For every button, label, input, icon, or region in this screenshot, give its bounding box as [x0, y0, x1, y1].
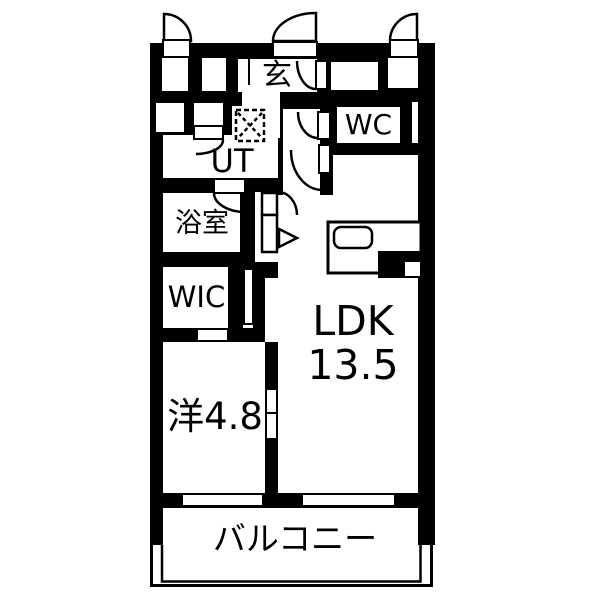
door-leaf-wic [197, 329, 228, 341]
door-leaf-hall-ldk [319, 145, 330, 173]
door-arc-hall-ldk [291, 150, 322, 190]
door-leaf-meter-box [163, 40, 190, 57]
door-leaf-entrance [273, 42, 317, 57]
door-arc-ut [278, 192, 297, 215]
door-leaf-wc [318, 112, 330, 139]
door-leaf-bathroom [214, 179, 245, 193]
label-bathroom: 浴室 [164, 210, 240, 237]
door-panel-ut-lower [262, 215, 277, 252]
label-genkan: 玄 [246, 61, 308, 91]
right-triangle-marker [279, 229, 297, 247]
door-arc-entrance [273, 13, 316, 41]
label-wc: WC [337, 111, 400, 139]
window-ldk [302, 494, 395, 506]
label-ldk: LDK [297, 301, 409, 342]
door-arc-meter-box [164, 14, 191, 41]
stove-notch [405, 262, 420, 276]
label-ldk-size: 13.5 [297, 345, 409, 386]
door-leaf-porch [390, 40, 418, 57]
sliding-door-panel-2 [266, 413, 277, 439]
door-arc-wc [298, 112, 318, 138]
label-ut: UT [196, 145, 268, 177]
door-leaf-storage [194, 126, 223, 139]
door-leaf-genkan-closet [316, 61, 327, 89]
label-wic: WIC [164, 283, 229, 312]
door-arc-porch [390, 14, 417, 41]
kitchen-sink [334, 227, 372, 248]
wic-side-slit [244, 269, 253, 324]
floor-plan: 玄 WC UT 浴室 WIC LDK 13.5 洋4.8 バルコニー [0, 0, 600, 600]
window-western-room [182, 494, 263, 506]
sliding-door-panel-1 [266, 389, 277, 413]
label-western-room: 洋4.8 [164, 398, 266, 435]
label-balcony: バルコニー [170, 522, 420, 555]
door-panel-ut-upper [262, 193, 277, 215]
